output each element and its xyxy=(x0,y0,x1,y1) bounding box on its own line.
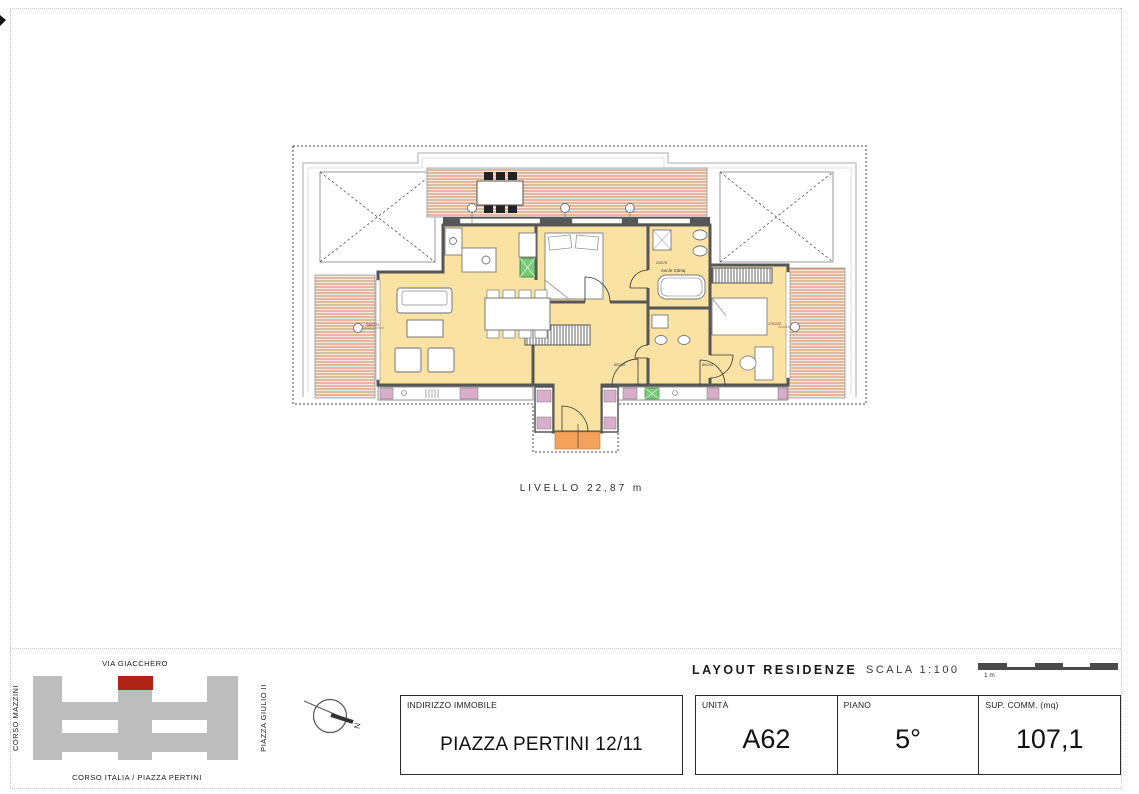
map-street-bottom: CORSO ITALIA / PIAZZA PERTINI xyxy=(72,773,202,782)
address-value: PIAZZA PERTINI 12/11 xyxy=(401,734,682,756)
unit-info-table: UNITÀ A62 PIANO 5° SUP. COMM. (mq) 107,1 xyxy=(695,695,1121,775)
map-highlight-unit xyxy=(118,676,153,690)
kitchen-appliance-green xyxy=(520,258,535,277)
skylight-right xyxy=(720,172,833,262)
surface-cell-value: 107,1 xyxy=(979,724,1120,755)
map-street-top: VIA GIACCHERO xyxy=(102,659,168,668)
unit-cell-value: A62 xyxy=(696,724,837,755)
surface-cell-label: SUP. COMM. (mq) xyxy=(985,700,1058,710)
section-divider xyxy=(10,648,1121,649)
dim-window-right: 170/225 xyxy=(768,322,781,326)
page-frame-right xyxy=(1121,8,1122,788)
floor-cell: PIANO 5° xyxy=(838,695,980,775)
master-bed xyxy=(545,233,603,299)
bath-area-label: Avc.le 3,5mq xyxy=(661,268,686,273)
scale-bar-segment xyxy=(1063,663,1090,667)
map-street-left: CORSO MAZZINI xyxy=(11,685,20,751)
surface-cell: SUP. COMM. (mq) 107,1 xyxy=(979,695,1121,775)
map-street-right: PIAZZA GIULIO II xyxy=(259,684,268,752)
scale-bar xyxy=(978,663,1118,670)
north-compass: N xyxy=(300,688,375,746)
compass-needle-thick xyxy=(331,715,353,722)
dim-bath-door: 210/75 xyxy=(656,261,667,265)
dim-window-left: 240/270 xyxy=(366,323,379,327)
dim-door-1: 80/210 xyxy=(614,363,625,367)
floorplan-sheet: { "plan": { "level_label": "LIVELLO 22,8… xyxy=(0,0,1139,794)
level-label: LIVELLO 22,87 m xyxy=(472,483,692,494)
page-edge-mark xyxy=(0,15,6,26)
page-frame-top xyxy=(10,8,1121,9)
unit-cell: UNITÀ A62 xyxy=(695,695,838,775)
skylight-left xyxy=(320,172,435,262)
address-box: INDIRIZZO IMMOBILE PIAZZA PERTINI 12/11 xyxy=(400,695,683,775)
floor-cell-value: 5° xyxy=(838,724,979,755)
scale-bar-segment xyxy=(1007,663,1035,667)
address-label: INDIRIZZO IMMOBILE xyxy=(407,700,497,710)
compass-north-label: N xyxy=(352,722,362,729)
window-west xyxy=(376,280,380,380)
layout-title: LAYOUT RESIDENZE xyxy=(692,663,857,677)
scale-bar-label: 1 m xyxy=(984,672,995,679)
location-map: VIA GIACCHERO CORSO ITALIA / PIAZZA PERT… xyxy=(10,650,300,790)
floor-plan: Avc.le 3,5mq 210/75 80/210 80/210 24 xyxy=(280,130,880,470)
terrace-right xyxy=(783,268,845,398)
north-windows xyxy=(460,219,690,224)
terrace-left xyxy=(315,275,375,398)
unit-cell-label: UNITÀ xyxy=(702,700,729,710)
window-east xyxy=(786,272,790,378)
scale-label: SCALA 1:100 xyxy=(866,664,960,676)
dim-door-2: 80/210 xyxy=(702,363,713,367)
floor-cell-label: PIANO xyxy=(844,700,871,710)
compass-circle xyxy=(314,700,347,733)
